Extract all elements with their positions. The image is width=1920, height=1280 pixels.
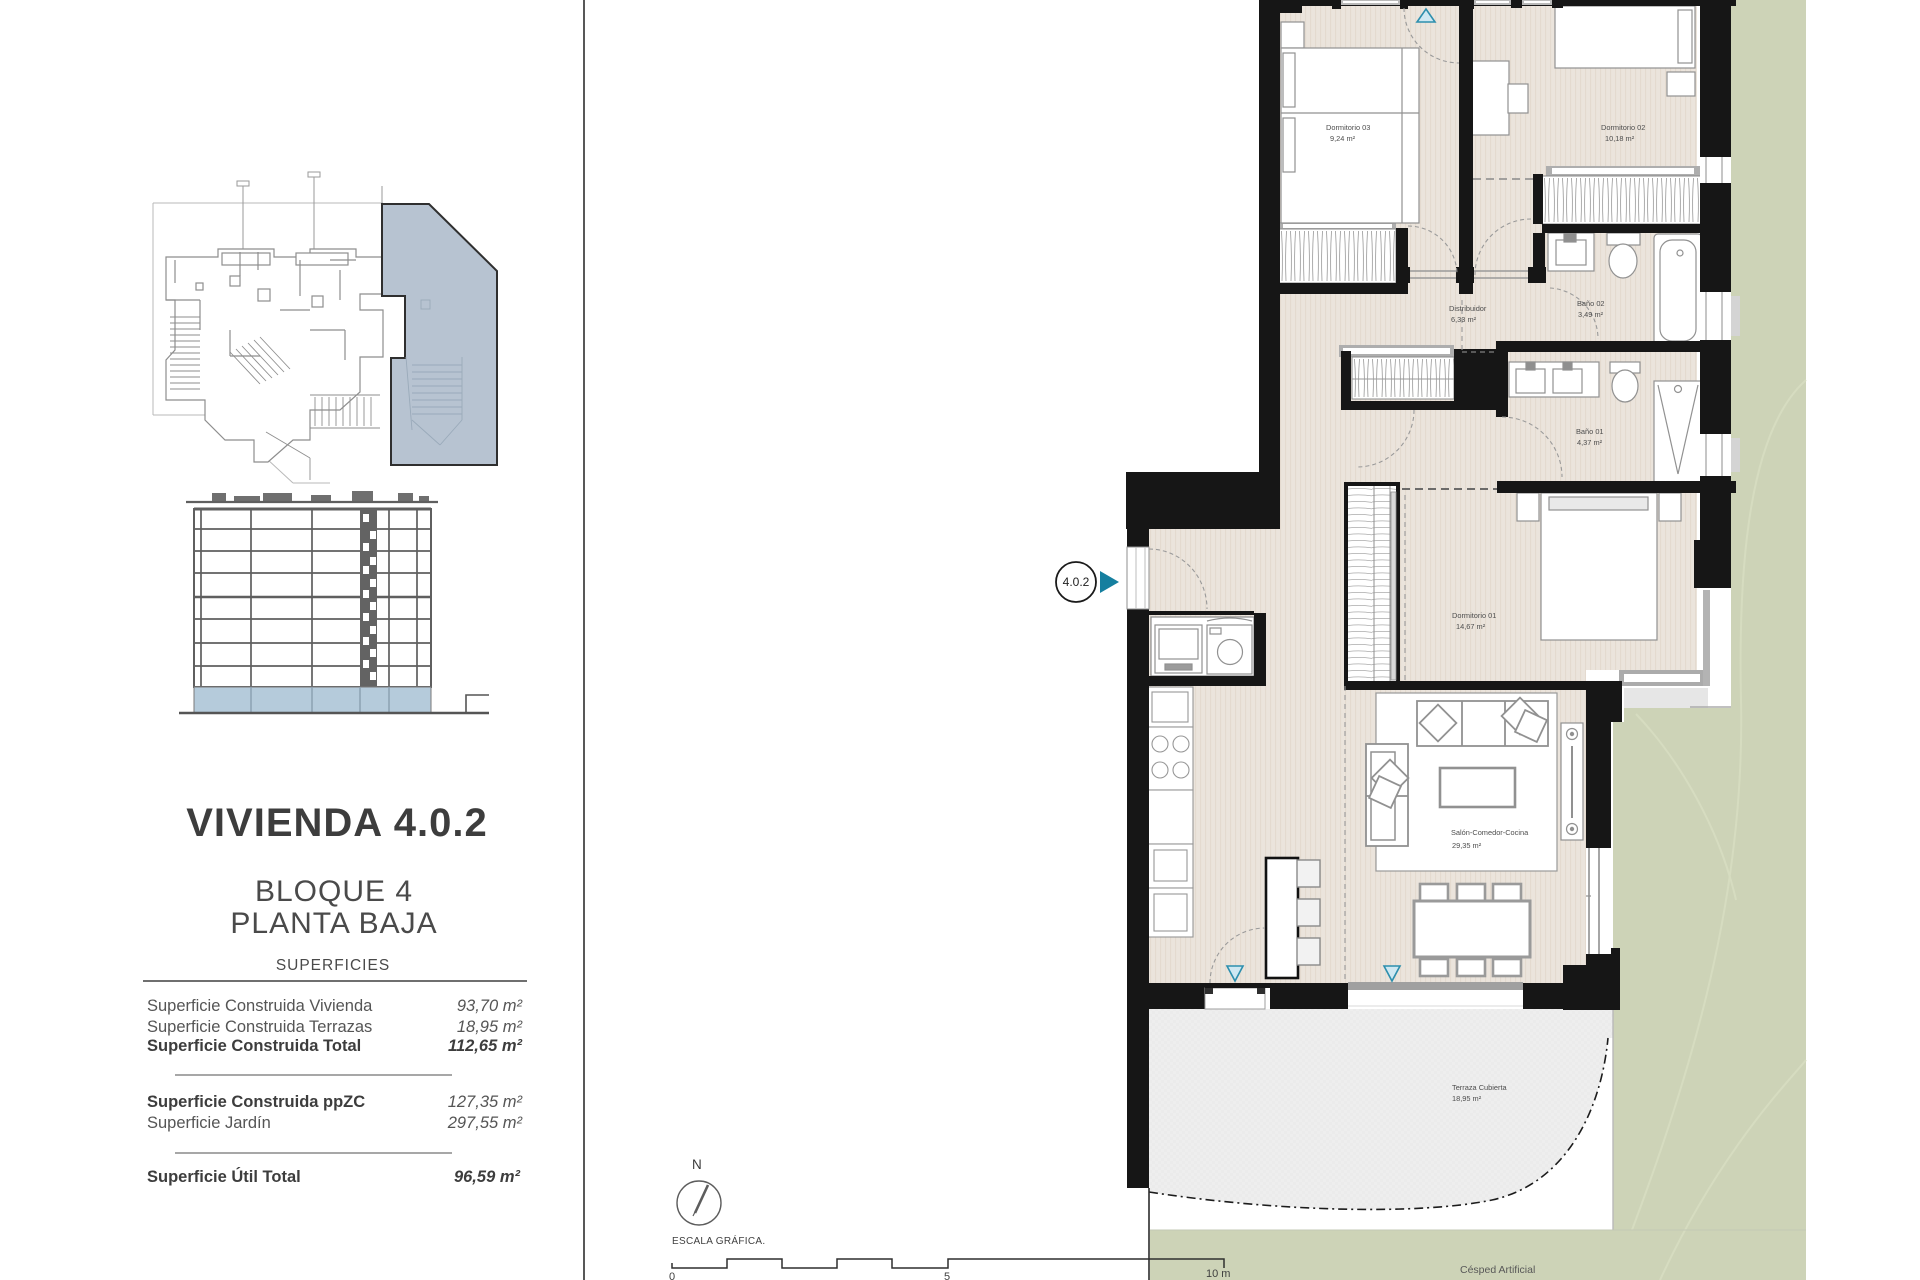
- svg-text:10,18 m²: 10,18 m²: [1605, 134, 1635, 143]
- svg-text:297,55 m²: 297,55 m²: [447, 1114, 523, 1132]
- svg-text:Césped Artificial: Césped Artificial: [1460, 1264, 1535, 1276]
- svg-text:Baño 01: Baño 01: [1576, 427, 1604, 436]
- svg-text:VIVIENDA 4.0.2: VIVIENDA 4.0.2: [186, 801, 488, 845]
- svg-text:N: N: [692, 1157, 702, 1172]
- svg-text:Terraza Cubierta: Terraza Cubierta: [1452, 1083, 1508, 1092]
- svg-text:4,37 m²: 4,37 m²: [1577, 438, 1603, 447]
- svg-text:112,65 m²: 112,65 m²: [448, 1037, 522, 1055]
- svg-text:6,33 m²: 6,33 m²: [1451, 315, 1477, 324]
- svg-text:127,35 m²: 127,35 m²: [448, 1093, 523, 1111]
- svg-text:Superficie Jardín: Superficie Jardín: [147, 1114, 271, 1132]
- svg-text:Dormitorio 03: Dormitorio 03: [1326, 123, 1370, 132]
- svg-text:10 m: 10 m: [1206, 1268, 1230, 1280]
- svg-text:Distribuidor: Distribuidor: [1449, 304, 1487, 313]
- svg-text:Superficie Construida Total: Superficie Construida Total: [147, 1037, 361, 1055]
- svg-text:Dormitorio 01: Dormitorio 01: [1452, 611, 1496, 620]
- svg-text:Superficie Construida Terrazas: Superficie Construida Terrazas: [147, 1018, 372, 1036]
- svg-text:0: 0: [669, 1271, 675, 1280]
- svg-text:Superficie Construida Vivienda: Superficie Construida Vivienda: [147, 997, 373, 1015]
- svg-text:Superficie Construida ppZC: Superficie Construida ppZC: [147, 1093, 365, 1111]
- svg-text:3,49 m²: 3,49 m²: [1578, 310, 1604, 319]
- svg-text:Dormitorio 02: Dormitorio 02: [1601, 123, 1645, 132]
- svg-text:PLANTA BAJA: PLANTA BAJA: [230, 907, 437, 940]
- svg-text:18,95 m²: 18,95 m²: [1452, 1094, 1482, 1103]
- svg-text:14,67 m²: 14,67 m²: [1456, 622, 1486, 631]
- svg-text:BLOQUE 4: BLOQUE 4: [255, 875, 413, 908]
- svg-text:SUPERFICIES: SUPERFICIES: [276, 957, 390, 974]
- svg-text:Salón-Comedor-Cocina: Salón-Comedor-Cocina: [1451, 828, 1529, 837]
- svg-text:4.0.2: 4.0.2: [1063, 575, 1090, 589]
- svg-text:93,70 m²: 93,70 m²: [457, 997, 523, 1015]
- svg-text:Baño 02: Baño 02: [1577, 299, 1605, 308]
- svg-text:29,35 m²: 29,35 m²: [1452, 841, 1482, 850]
- svg-text:96,59 m²: 96,59 m²: [454, 1168, 521, 1186]
- svg-text:9,24 m²: 9,24 m²: [1330, 134, 1356, 143]
- svg-text:18,95 m²: 18,95 m²: [457, 1018, 523, 1036]
- svg-text:5: 5: [944, 1271, 950, 1280]
- svg-text:Superficie Útil Total: Superficie Útil Total: [147, 1167, 301, 1186]
- svg-text:ESCALA GRÁFICA.: ESCALA GRÁFICA.: [672, 1234, 765, 1247]
